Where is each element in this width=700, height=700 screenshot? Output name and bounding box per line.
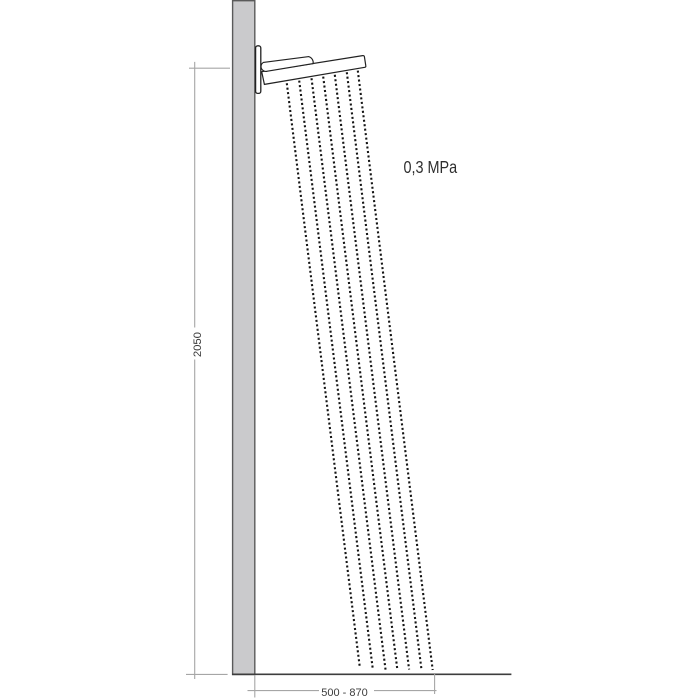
svg-text:0,3 MPa: 0,3 MPa <box>404 158 458 178</box>
svg-text:2050: 2050 <box>192 332 204 357</box>
svg-text:500 - 870: 500 - 870 <box>321 687 367 699</box>
